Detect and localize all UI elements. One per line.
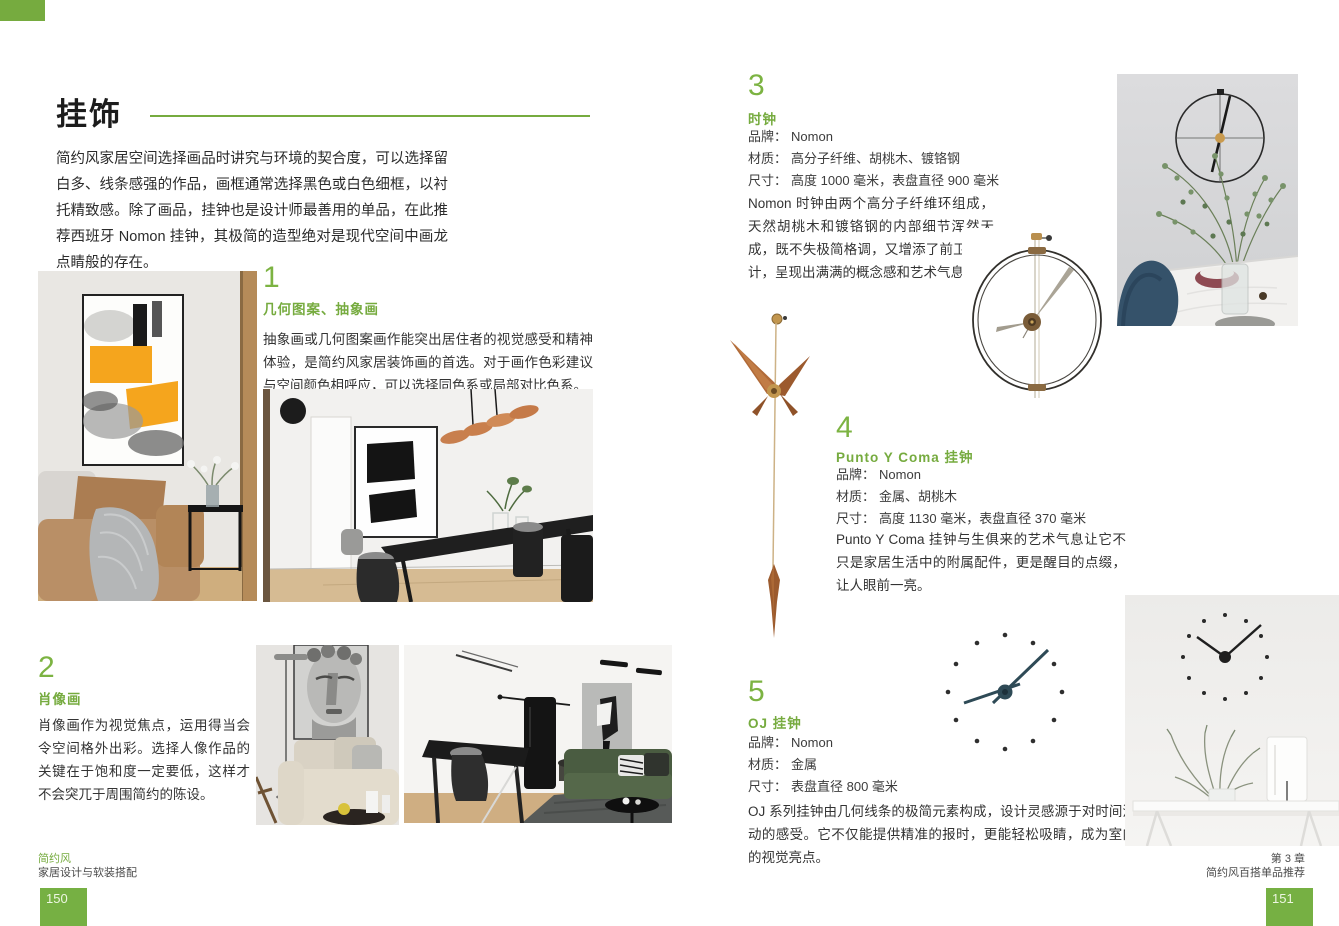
spec-brand-label: 品牌：	[748, 129, 787, 144]
spec-material-value: 金属、胡桃木	[879, 489, 957, 504]
photo-living-room-green-sofa	[404, 645, 672, 823]
spec-material-value: 金属	[791, 757, 817, 772]
spec-brand-value: Nomon	[791, 129, 833, 144]
page-number-left: 150	[40, 888, 87, 926]
section-3-title: 时钟	[748, 108, 777, 128]
spec-material-label: 材质：	[748, 151, 787, 166]
footer-chapter-title: 简约风百搭单品推荐	[1206, 866, 1305, 880]
section-5-number: 5	[748, 676, 765, 708]
spec-size-value: 高度 1000 毫米，表盘直径 900 毫米	[791, 173, 999, 188]
section-4-specs: 品牌：Nomon 材质：金属、胡桃木 尺寸：高度 1130 毫米，表盘直径 37…	[836, 464, 1086, 530]
photo-oj-clock-console	[1125, 595, 1339, 846]
section-2-title: 肖像画	[38, 688, 82, 708]
photo-portrait-art-sofa	[256, 645, 399, 825]
spec-size-label: 尺寸：	[836, 511, 875, 526]
footer-book-title: 家居设计与软装搭配	[38, 866, 137, 880]
book-spread: { "colors": { "accent_green": "#76ab3f",…	[0, 0, 1339, 926]
section-4-title: Punto Y Coma 挂钟	[836, 446, 974, 466]
title-rule	[150, 115, 590, 117]
product-image-oj-clock	[940, 622, 1070, 762]
section-4-body: Punto Y Coma 挂钟与生俱来的艺术气息让它不只是家居生活中的附属配件，…	[836, 528, 1126, 597]
section-5-body: OJ 系列挂钟由几何线条的极简元素构成，设计灵感源于对时间流动的感受。它不仅能提…	[748, 800, 1136, 869]
spec-size-label: 尺寸：	[748, 173, 787, 188]
title-accent-block	[0, 0, 45, 21]
spec-brand-value: Nomon	[791, 735, 833, 750]
page-title: 挂饰	[56, 98, 122, 132]
section-3-specs: 品牌：Nomon 材质：高分子纤维、胡桃木、镀铬钢 尺寸：高度 1000 毫米，…	[748, 126, 999, 192]
section-1-body: 抽象画或几何图案画作能突出居住者的视觉感受和精神体验，是简约风家居装饰画的首选。…	[263, 328, 593, 397]
product-image-punto-y-coma-clock	[722, 310, 817, 640]
intro-paragraph: 简约风家居空间选择画品时讲究与环境的契合度，可以选择留白多、线条感强的作品，画框…	[56, 146, 448, 276]
section-5-title: OJ 挂钟	[748, 712, 802, 732]
footer-series: 简约风	[38, 852, 71, 866]
section-3-body: Nomon 时钟由两个高分子纤维环组成，天然胡桃木和镀铬钢的内部细节浑然天成，既…	[748, 192, 994, 284]
spec-material-label: 材质：	[748, 757, 787, 772]
photo-living-room-abstract-art	[38, 271, 257, 601]
spec-size-label: 尺寸：	[748, 779, 787, 794]
section-2-number: 2	[38, 652, 55, 684]
photo-wall-clock-scene	[1117, 74, 1298, 326]
page-number-right: 151	[1266, 888, 1313, 926]
section-4-number: 4	[836, 412, 853, 444]
spec-size-value: 表盘直径 800 毫米	[791, 779, 898, 794]
spec-material-label: 材质：	[836, 489, 875, 504]
photo-dining-room-art	[263, 389, 593, 602]
spec-brand-value: Nomon	[879, 467, 921, 482]
spec-size-value: 高度 1130 毫米，表盘直径 370 毫米	[879, 511, 1086, 526]
spec-material-value: 高分子纤维、胡桃木、镀铬钢	[791, 151, 960, 166]
spec-brand-label: 品牌：	[836, 467, 875, 482]
section-3-number: 3	[748, 70, 765, 102]
product-image-barcelona-clock	[962, 228, 1112, 404]
footer-chapter: 第 3 章	[1271, 852, 1305, 866]
section-2-body: 肖像画作为视觉焦点，运用得当会令空间格外出彩。选择人像作品的关键在于饱和度一定要…	[38, 714, 250, 806]
section-5-specs: 品牌：Nomon 材质：金属 尺寸：表盘直径 800 毫米	[748, 732, 898, 798]
spec-brand-label: 品牌：	[748, 735, 787, 750]
section-1-number: 1	[263, 262, 280, 294]
section-1-title: 几何图案、抽象画	[263, 298, 379, 318]
